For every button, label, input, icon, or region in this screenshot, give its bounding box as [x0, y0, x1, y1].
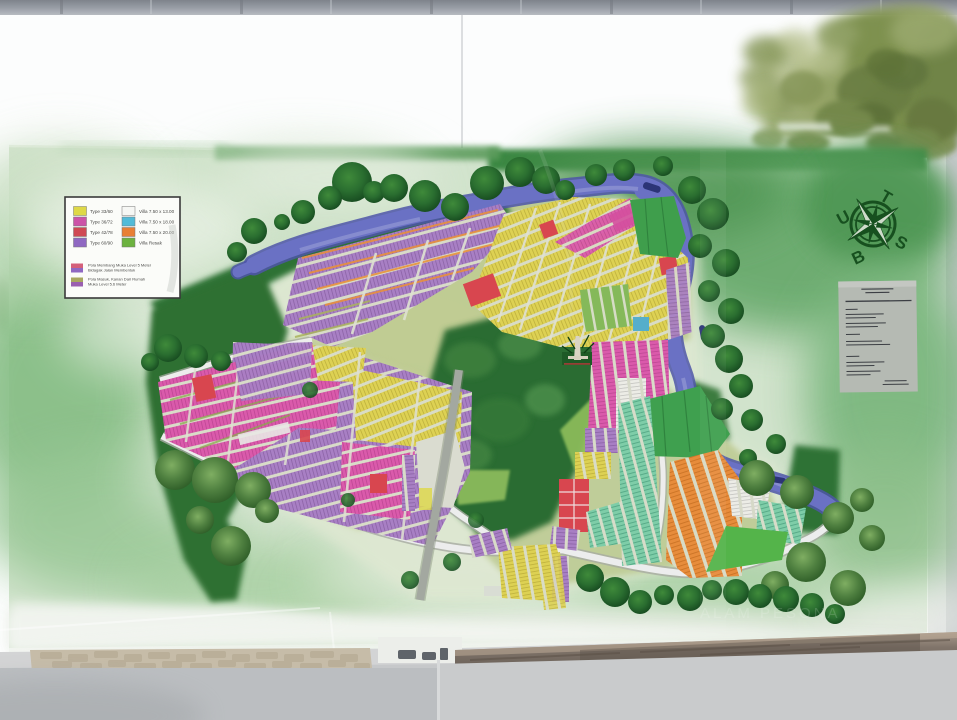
- svg-text:Villa 7.50 x 13.00: Villa 7.50 x 13.00: [139, 209, 175, 214]
- svg-text:Muka Level 5.6 Meter: Muka Level 5.6 Meter: [88, 282, 127, 287]
- svg-text:Type 60/90: Type 60/90: [90, 241, 113, 246]
- svg-text:Type 42/78: Type 42/78: [90, 230, 113, 235]
- svg-text:Bidagak Jalan Membentuk: Bidagak Jalan Membentuk: [88, 268, 135, 273]
- svg-text:Villa Resak: Villa Resak: [139, 241, 163, 246]
- svg-text:Villa 7.50 x 18.00: Villa 7.50 x 18.00: [139, 220, 175, 225]
- svg-text:Type 33/60: Type 33/60: [90, 209, 113, 214]
- svg-text:Type 36/72: Type 36/72: [90, 220, 113, 225]
- svg-text:Villa 7.50 x 20.00: Villa 7.50 x 20.00: [139, 230, 175, 235]
